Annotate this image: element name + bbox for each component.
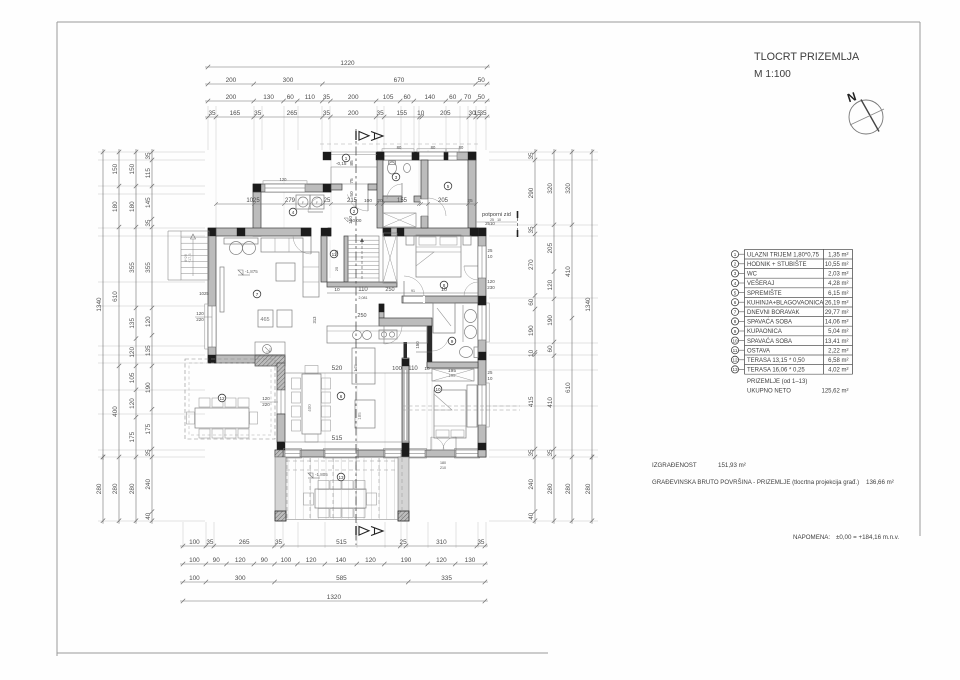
svg-text:320: 320 [547, 183, 554, 194]
svg-text:±0,00 = +184,16 m.n.v.: ±0,00 = +184,16 m.n.v. [836, 534, 899, 541]
svg-text:220: 220 [262, 402, 270, 407]
svg-text:200: 200 [226, 77, 237, 84]
svg-text:60: 60 [449, 94, 457, 101]
svg-text:410: 410 [547, 397, 554, 408]
svg-text:2: 2 [734, 262, 737, 267]
svg-text:35: 35 [206, 539, 214, 546]
svg-text:250: 250 [385, 287, 394, 293]
svg-text:25: 25 [488, 248, 493, 253]
svg-text:140: 140 [424, 94, 435, 101]
svg-text:25: 25 [324, 198, 331, 204]
svg-text:75: 75 [349, 178, 355, 184]
svg-text:80: 80 [459, 145, 464, 150]
svg-text:-1,875: -1,875 [245, 269, 258, 274]
svg-text:35: 35 [145, 152, 152, 160]
svg-text:145: 145 [353, 364, 358, 372]
svg-text:100: 100 [189, 557, 200, 564]
svg-text:2: 2 [353, 209, 356, 214]
svg-text:55: 55 [334, 250, 340, 256]
svg-text:60: 60 [547, 345, 554, 353]
svg-text:105: 105 [383, 94, 394, 101]
svg-text:80: 80 [431, 145, 436, 150]
svg-text:TERASA 13,15 * 0,50: TERASA 13,15 * 0,50 [747, 358, 805, 364]
svg-text:3: 3 [395, 175, 398, 180]
svg-text:WC: WC [747, 272, 758, 278]
svg-text:110: 110 [358, 287, 368, 293]
svg-text:70: 70 [464, 94, 472, 101]
svg-text:125,62 m²: 125,62 m² [821, 389, 848, 395]
svg-text:165: 165 [230, 110, 241, 117]
svg-text:210: 210 [440, 466, 446, 470]
svg-text:1340: 1340 [585, 297, 592, 312]
svg-text:280: 280 [565, 483, 572, 494]
svg-text:DNEVNI BORAVAK: DNEVNI BORAVAK [747, 310, 799, 316]
svg-text:6: 6 [734, 300, 737, 305]
svg-text:415: 415 [528, 396, 535, 407]
svg-text:175: 175 [145, 423, 152, 434]
svg-text:120: 120 [129, 347, 136, 358]
svg-text:PRIZEMLJE (od 1–13): PRIZEMLJE (od 1–13) [747, 379, 807, 385]
svg-text:TERASA 16,06 * 0,25: TERASA 16,06 * 0,25 [747, 368, 805, 374]
svg-text:190: 190 [145, 382, 152, 393]
svg-text:25: 25 [334, 266, 339, 271]
svg-text:10,55 m²: 10,55 m² [825, 262, 849, 268]
svg-text:205: 205 [547, 242, 554, 253]
svg-text:HODNIK + STUBIŠTE: HODNIK + STUBIŠTE [747, 261, 807, 268]
svg-text:120: 120 [196, 311, 204, 316]
svg-text:10: 10 [528, 349, 535, 357]
svg-text:10: 10 [435, 387, 441, 392]
svg-text:200: 200 [348, 110, 359, 117]
svg-text:200: 200 [348, 94, 359, 101]
svg-text:ULAZNI TRIJEM 1,80*0,75: ULAZNI TRIJEM 1,80*0,75 [747, 252, 820, 258]
svg-text:91: 91 [411, 289, 415, 293]
svg-text:14,06 m²: 14,06 m² [825, 320, 849, 326]
svg-text:280: 280 [547, 483, 554, 494]
svg-text:5: 5 [734, 290, 737, 295]
svg-text:40: 40 [528, 512, 535, 520]
svg-text:SPREMIŠTE: SPREMIŠTE [747, 290, 782, 297]
svg-text:12: 12 [219, 396, 225, 401]
svg-text:110: 110 [305, 94, 316, 101]
svg-text:12: 12 [732, 358, 738, 363]
svg-text:2510: 2510 [485, 221, 495, 226]
svg-text:155: 155 [396, 110, 407, 117]
svg-text:90: 90 [213, 557, 221, 564]
svg-text:410: 410 [565, 266, 572, 277]
svg-text:265: 265 [239, 539, 250, 546]
svg-text:6,15 m²: 6,15 m² [828, 291, 848, 297]
svg-text:TLOCRT PRIZEMLJA: TLOCRT PRIZEMLJA [754, 51, 860, 63]
svg-text:1,35 m²: 1,35 m² [828, 252, 848, 258]
svg-text:5,04 m²: 5,04 m² [828, 329, 848, 335]
svg-text:120: 120 [235, 557, 246, 564]
svg-text:10: 10 [441, 287, 447, 293]
svg-text:26,19 m²: 26,19 m² [825, 300, 849, 306]
svg-text:185: 185 [357, 412, 362, 420]
svg-text:35: 35 [145, 449, 152, 457]
svg-text:-1,805: -1,805 [315, 472, 328, 477]
svg-text:35: 35 [547, 449, 554, 457]
svg-text:KUPAONICA: KUPAONICA [747, 329, 782, 335]
svg-text:2,03 m²: 2,03 m² [828, 272, 848, 278]
svg-text:50: 50 [478, 94, 486, 101]
svg-text:1: 1 [734, 252, 737, 257]
svg-text:80: 80 [397, 145, 402, 150]
svg-text:130: 130 [465, 557, 476, 564]
svg-text:35: 35 [275, 539, 283, 546]
svg-text:25: 25 [400, 539, 408, 546]
svg-text:10: 10 [417, 110, 425, 117]
svg-text:35: 35 [528, 152, 535, 160]
svg-text:7: 7 [734, 310, 737, 315]
svg-text:SPAVAĆA SOBA: SPAVAĆA SOBA [747, 319, 792, 326]
svg-text:10: 10 [488, 254, 493, 259]
svg-text:610: 610 [112, 291, 119, 302]
svg-text:10: 10 [424, 366, 430, 372]
svg-text:195: 195 [448, 368, 456, 374]
svg-text:150: 150 [415, 341, 420, 349]
svg-text:40: 40 [145, 512, 152, 520]
svg-text:60: 60 [403, 94, 411, 101]
svg-text:UKUPNO NETO: UKUPNO NETO [747, 389, 791, 395]
svg-text:1320: 1320 [327, 594, 342, 601]
svg-text:35: 35 [323, 110, 331, 117]
svg-text:25: 25 [488, 370, 493, 375]
svg-text:4,28 m²: 4,28 m² [828, 281, 848, 287]
svg-text:520: 520 [332, 365, 343, 372]
svg-text:335: 335 [441, 575, 452, 582]
svg-text:11: 11 [733, 348, 738, 353]
svg-text:150: 150 [112, 163, 119, 174]
svg-text:9: 9 [734, 329, 737, 334]
svg-text:145: 145 [145, 197, 152, 208]
svg-text:150: 150 [129, 163, 136, 174]
svg-text:60: 60 [528, 298, 535, 306]
svg-text:240: 240 [528, 479, 535, 490]
svg-text:35: 35 [208, 110, 216, 117]
svg-text:110: 110 [408, 366, 418, 372]
svg-text:120: 120 [487, 279, 495, 284]
svg-text:120: 120 [547, 279, 554, 290]
svg-text:180: 180 [112, 201, 119, 212]
svg-text:265: 265 [287, 110, 298, 117]
svg-text:1025: 1025 [199, 291, 209, 296]
svg-text:100: 100 [281, 557, 292, 564]
svg-text:151,93 m²: 151,93 m² [718, 462, 746, 469]
svg-text:100: 100 [189, 539, 200, 546]
svg-text:120: 120 [145, 316, 152, 327]
svg-text:175: 175 [129, 431, 136, 442]
svg-text:135: 135 [129, 318, 136, 329]
svg-text:NAPOMENA:: NAPOMENA: [793, 534, 830, 541]
svg-text:50: 50 [478, 77, 486, 84]
svg-text:220: 220 [196, 317, 204, 322]
svg-text:240: 240 [145, 479, 152, 490]
svg-text:VEŠERAJ: VEŠERAJ [747, 280, 774, 287]
svg-text:3: 3 [734, 271, 737, 276]
svg-text:515: 515 [332, 435, 343, 442]
svg-text:670: 670 [394, 77, 405, 84]
svg-text:KUHINJA+BLAGOVAONICA: KUHINJA+BLAGOVAONICA [747, 300, 823, 306]
svg-text:100: 100 [392, 366, 402, 372]
svg-text:120: 120 [436, 557, 447, 564]
svg-text:6: 6 [340, 394, 343, 399]
svg-text:205: 205 [438, 198, 449, 204]
svg-text:270: 270 [528, 259, 535, 270]
svg-text:115: 115 [145, 168, 152, 179]
svg-text:OSTAVA: OSTAVA [747, 348, 770, 354]
svg-text:120: 120 [280, 177, 288, 182]
svg-text:13: 13 [732, 367, 738, 372]
svg-text:8: 8 [734, 319, 737, 324]
svg-text:SPAVAĆA SOBA: SPAVAĆA SOBA [747, 338, 792, 345]
svg-text:GRAĐEVINSKA BRUTO POVRŠINA - P: GRAĐEVINSKA BRUTO POVRŠINA - PRIZEMLJE (… [652, 479, 859, 486]
svg-text:400: 400 [112, 406, 119, 417]
svg-text:35: 35 [528, 226, 535, 234]
svg-text:320: 320 [565, 183, 572, 194]
svg-text:35: 35 [528, 449, 535, 457]
svg-text:9: 9 [451, 339, 454, 344]
svg-text:35: 35 [254, 110, 262, 117]
svg-text:±0,00: ±0,00 [350, 218, 362, 223]
svg-text:130: 130 [263, 94, 274, 101]
svg-text:20: 20 [377, 198, 383, 204]
svg-text:1220: 1220 [340, 60, 355, 67]
svg-text:313: 313 [312, 316, 317, 324]
svg-text:310: 310 [436, 539, 447, 546]
svg-text:280: 280 [129, 483, 136, 494]
svg-text:120: 120 [262, 396, 270, 401]
svg-text:10: 10 [497, 218, 501, 222]
svg-text:50: 50 [349, 191, 355, 197]
svg-text:10: 10 [334, 287, 340, 293]
svg-text:100: 100 [364, 198, 372, 204]
svg-text:280: 280 [585, 483, 592, 494]
svg-text:230: 230 [487, 285, 495, 290]
svg-text:25: 25 [467, 198, 473, 204]
svg-text:1025: 1025 [246, 198, 260, 204]
svg-text:120: 120 [365, 557, 376, 564]
svg-text:280: 280 [112, 483, 119, 494]
svg-text:105: 105 [129, 372, 136, 383]
svg-text:215: 215 [347, 198, 358, 204]
svg-text:200: 200 [226, 94, 237, 101]
svg-text:135: 135 [145, 345, 152, 356]
svg-text:279: 279 [285, 198, 296, 204]
svg-text:515: 515 [336, 539, 347, 546]
svg-text:10: 10 [488, 376, 493, 381]
svg-text:6,58 m²: 6,58 m² [828, 358, 848, 364]
svg-text:190: 190 [528, 325, 535, 336]
svg-text:85: 85 [349, 160, 355, 166]
svg-text:136,66 m²: 136,66 m² [866, 479, 894, 486]
svg-text:90: 90 [261, 557, 269, 564]
svg-text:-0,15: -0,15 [336, 161, 347, 166]
svg-text:29,77 m²: 29,77 m² [825, 310, 849, 316]
svg-text:120: 120 [306, 557, 317, 564]
svg-text:180: 180 [440, 461, 446, 465]
svg-text:300: 300 [283, 77, 294, 84]
svg-text:585: 585 [336, 575, 347, 582]
svg-text:4: 4 [292, 210, 295, 215]
svg-text:205: 205 [440, 110, 451, 117]
svg-text:155: 155 [397, 198, 408, 204]
svg-text:180: 180 [129, 201, 136, 212]
svg-text:M 1:100: M 1:100 [754, 69, 791, 80]
svg-text:35: 35 [145, 219, 152, 227]
svg-text:4,02 m²: 4,02 m² [828, 368, 848, 374]
svg-text:355: 355 [129, 262, 136, 273]
svg-text:400: 400 [307, 404, 312, 412]
svg-text:610: 610 [565, 382, 572, 393]
svg-text:465: 465 [260, 317, 269, 323]
svg-text:140: 140 [335, 557, 346, 564]
svg-text:190: 190 [547, 315, 554, 326]
svg-text:2,22 m²: 2,22 m² [828, 348, 848, 354]
svg-text:35: 35 [323, 94, 331, 101]
svg-text:190: 190 [401, 557, 412, 564]
svg-text:280: 280 [96, 483, 103, 494]
svg-text:1340: 1340 [96, 297, 103, 312]
svg-text:IZGRAĐENOST: IZGRAĐENOST [652, 462, 697, 469]
svg-text:60: 60 [287, 94, 295, 101]
svg-text:35: 35 [479, 110, 487, 117]
svg-text:13,41 m²: 13,41 m² [825, 339, 849, 345]
svg-text:13: 13 [338, 475, 344, 480]
svg-text:120: 120 [129, 398, 136, 409]
svg-text:5: 5 [447, 184, 450, 189]
svg-text:2,081: 2,081 [359, 296, 368, 300]
svg-text:100: 100 [189, 575, 200, 582]
svg-text:250: 250 [357, 313, 366, 319]
svg-text:10: 10 [732, 338, 738, 343]
svg-text:300: 300 [235, 575, 246, 582]
svg-text:4: 4 [734, 281, 737, 286]
svg-text:35: 35 [477, 539, 485, 546]
svg-text:*17,5: *17,5 [188, 254, 192, 263]
svg-text:35: 35 [377, 110, 385, 117]
svg-text:7: 7 [256, 292, 259, 297]
svg-text:290: 290 [528, 187, 535, 198]
svg-text:355: 355 [145, 262, 152, 273]
